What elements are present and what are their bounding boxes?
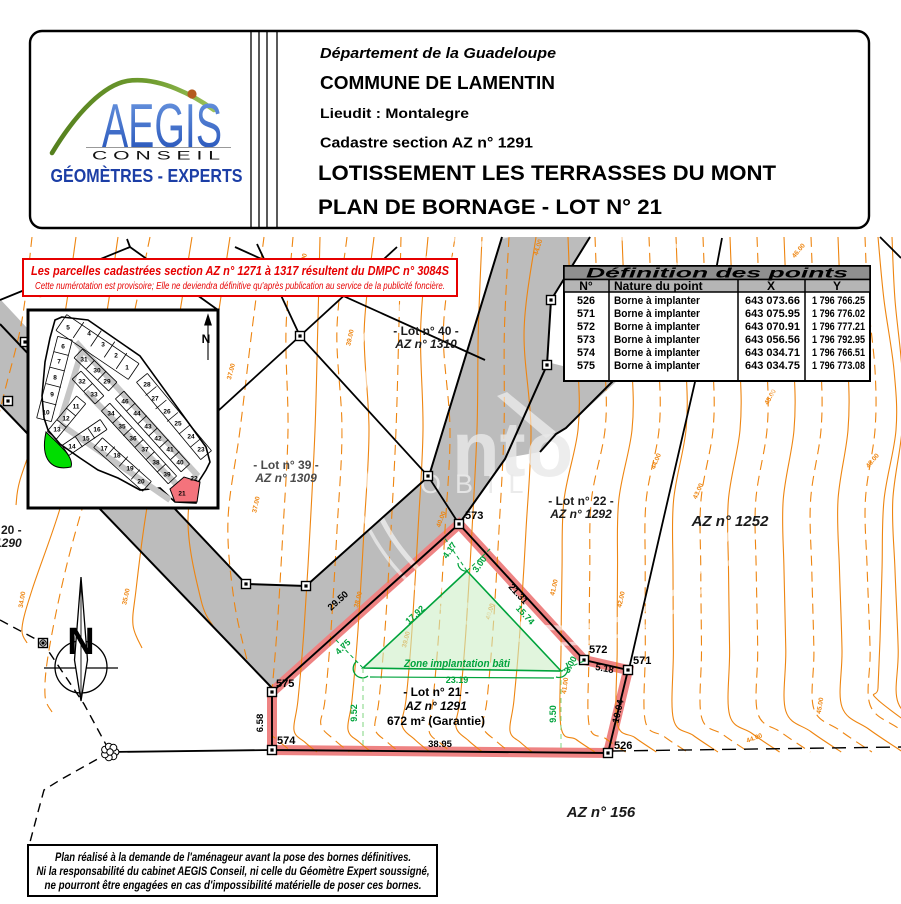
svg-text:PLAN DE BORNAGE - LOT N° 21: PLAN DE BORNAGE - LOT N° 21 — [318, 196, 662, 219]
svg-text:12: 12 — [62, 416, 70, 423]
svg-text:6.58: 6.58 — [255, 714, 266, 733]
svg-text:22: 22 — [190, 476, 198, 483]
svg-text:N: N — [67, 621, 94, 663]
svg-text:6: 6 — [61, 344, 65, 351]
svg-text:2: 2 — [114, 353, 118, 360]
svg-text:1 796 777.21: 1 796 777.21 — [812, 321, 865, 333]
svg-text:Zone implantation bâti: Zone implantation bâti — [403, 658, 511, 670]
svg-text:LOTISSEMENT LES TERRASSES DU M: LOTISSEMENT LES TERRASSES DU MONT — [318, 162, 776, 185]
svg-text:31: 31 — [80, 357, 88, 364]
svg-text:37: 37 — [141, 447, 149, 454]
svg-text:Borne à implanter: Borne à implanter — [614, 334, 701, 346]
svg-text:643 056.56: 643 056.56 — [745, 334, 800, 346]
svg-text:571: 571 — [633, 655, 651, 667]
svg-text:574: 574 — [577, 347, 595, 359]
svg-text:1 796 773.08: 1 796 773.08 — [812, 360, 865, 372]
svg-text:10: 10 — [42, 410, 50, 417]
svg-text:1 796 776.02: 1 796 776.02 — [812, 308, 865, 320]
svg-text:526: 526 — [577, 295, 595, 307]
svg-text:Les parcelles cadastrées secti: Les parcelles cadastrées section AZ n° 1… — [31, 263, 449, 278]
svg-text:X: X — [767, 279, 775, 293]
svg-text:44: 44 — [133, 411, 141, 418]
svg-text:Ni la responsabilité du cabine: Ni la responsabilité du cabinet AEGIS Co… — [37, 864, 430, 878]
svg-text:643 034.71: 643 034.71 — [745, 347, 800, 359]
svg-text:Borne à implanter: Borne à implanter — [614, 347, 701, 359]
svg-text:ne pourront être engagées en c: ne pourront être engagées en cas d'impos… — [45, 878, 422, 892]
svg-text:AZ n° 1310: AZ n° 1310 — [394, 337, 457, 351]
svg-text:Nature du point: Nature du point — [614, 279, 703, 293]
svg-text:39: 39 — [163, 472, 171, 479]
svg-text:GÉOMÈTRES - EXPERTS: GÉOMÈTRES - EXPERTS — [51, 165, 243, 186]
svg-text:AZ n° 1252: AZ n° 1252 — [691, 513, 770, 530]
svg-text:575: 575 — [276, 678, 294, 690]
svg-text:672 m² (Garantie): 672 m² (Garantie) — [387, 714, 485, 728]
svg-text:- Lot n° 21 -: - Lot n° 21 - — [403, 685, 468, 699]
svg-text:- Lot n° 39 -: - Lot n° 39 - — [253, 458, 318, 472]
svg-text:43: 43 — [144, 424, 152, 431]
svg-text:29: 29 — [103, 379, 111, 386]
svg-text:Borne à implanter: Borne à implanter — [614, 360, 701, 372]
svg-text:33: 33 — [90, 392, 98, 399]
svg-text:18: 18 — [113, 453, 121, 460]
svg-text:11: 11 — [73, 404, 80, 411]
svg-text:16: 16 — [93, 427, 101, 434]
svg-text:643 034.75: 643 034.75 — [745, 360, 800, 372]
svg-text:7: 7 — [57, 359, 61, 366]
svg-text:1: 1 — [125, 365, 129, 372]
svg-text:C O N S E I L: C O N S E I L — [92, 149, 221, 163]
svg-text:526: 526 — [614, 740, 632, 752]
svg-text:23.19: 23.19 — [446, 675, 469, 685]
svg-text:41: 41 — [166, 447, 174, 454]
svg-text:26: 26 — [163, 409, 171, 416]
svg-text:571: 571 — [577, 308, 595, 320]
svg-text:- Lot n° 40 -: - Lot n° 40 - — [393, 324, 458, 338]
svg-text:20: 20 — [137, 479, 145, 486]
svg-text:COMMUNE DE LAMENTIN: COMMUNE DE LAMENTIN — [320, 73, 555, 93]
svg-text:28: 28 — [143, 382, 151, 389]
svg-text:1 796 792.95: 1 796 792.95 — [812, 334, 865, 346]
svg-text:Borne à implanter: Borne à implanter — [614, 308, 701, 320]
svg-text:46: 46 — [121, 399, 129, 406]
svg-text:Plan réalisé à la demande de l: Plan réalisé à la demande de l'aménageur… — [55, 850, 411, 864]
svg-text:Borne à implanter: Borne à implanter — [614, 321, 701, 333]
svg-text:AZ n° 1292: AZ n° 1292 — [549, 507, 612, 521]
svg-text:572: 572 — [577, 321, 595, 333]
svg-text:4: 4 — [87, 331, 91, 338]
svg-text:14: 14 — [68, 444, 76, 451]
svg-text:3: 3 — [101, 342, 105, 349]
svg-text:1 796 766.25: 1 796 766.25 — [812, 295, 865, 307]
svg-text:9.52: 9.52 — [349, 704, 359, 722]
svg-text:30: 30 — [93, 368, 101, 375]
svg-text:36: 36 — [129, 436, 137, 443]
svg-text:Borne à implanter: Borne à implanter — [614, 295, 701, 307]
svg-text:38: 38 — [152, 460, 160, 467]
svg-text:AZ n° 156: AZ n° 156 — [566, 804, 636, 821]
svg-text:643 073.66: 643 073.66 — [745, 295, 800, 307]
svg-text:27: 27 — [151, 396, 159, 403]
svg-text:Cadastre section AZ n° 1291: Cadastre section AZ n° 1291 — [320, 136, 533, 152]
svg-text:23: 23 — [197, 447, 205, 454]
svg-text:15: 15 — [82, 436, 90, 443]
svg-text:1290: 1290 — [0, 536, 22, 550]
svg-text:1 796 766.51: 1 796 766.51 — [812, 347, 865, 359]
svg-text:8: 8 — [53, 375, 57, 382]
svg-text:32: 32 — [78, 379, 86, 386]
svg-text:24: 24 — [187, 434, 195, 441]
svg-text:17: 17 — [100, 446, 108, 453]
svg-text:572: 572 — [589, 644, 607, 656]
svg-text:34: 34 — [107, 411, 115, 418]
svg-text:N: N — [202, 332, 211, 346]
svg-text:9: 9 — [50, 392, 54, 399]
svg-text:Cette numérotation est proviso: Cette numérotation est provisoire; Elle … — [35, 281, 445, 292]
svg-text:5: 5 — [66, 325, 70, 332]
svg-text:Lieudit : Montalegre: Lieudit : Montalegre — [320, 105, 469, 121]
svg-text:573: 573 — [465, 510, 483, 522]
svg-text:575: 575 — [577, 360, 595, 372]
svg-text:643 075.95: 643 075.95 — [745, 308, 800, 320]
svg-text:20 -: 20 - — [1, 523, 22, 537]
svg-text:Y: Y — [833, 279, 841, 293]
svg-text:643 070.91: 643 070.91 — [745, 321, 800, 333]
svg-text:Département de la Guadeloupe: Département de la Guadeloupe — [320, 46, 556, 62]
svg-text:9.50: 9.50 — [548, 705, 558, 723]
svg-text:21: 21 — [178, 491, 186, 498]
svg-text:573: 573 — [577, 334, 595, 346]
svg-text:35: 35 — [118, 424, 126, 431]
svg-text:AZ n° 1291: AZ n° 1291 — [404, 699, 467, 713]
svg-text:N°: N° — [579, 279, 593, 293]
svg-text:19: 19 — [126, 466, 134, 473]
svg-text:13: 13 — [53, 427, 61, 434]
svg-text:AZ n° 1309: AZ n° 1309 — [254, 471, 317, 485]
svg-text:40: 40 — [176, 460, 184, 467]
svg-text:25: 25 — [174, 421, 182, 428]
svg-text:38.95: 38.95 — [428, 739, 452, 750]
svg-text:- Lot n° 22 -: - Lot n° 22 - — [548, 494, 613, 508]
svg-text:574: 574 — [277, 735, 296, 747]
svg-text:42: 42 — [154, 436, 162, 443]
